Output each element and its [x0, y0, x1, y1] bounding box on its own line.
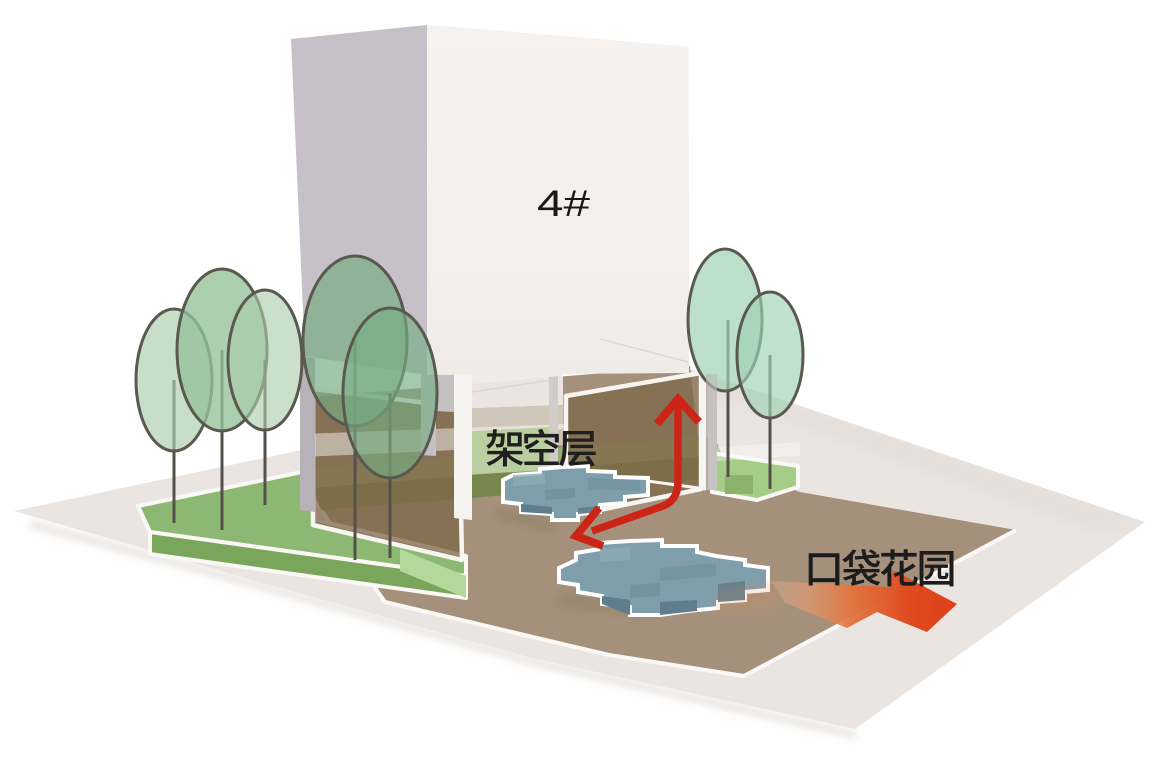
- svg-text:4#: 4#: [537, 183, 591, 224]
